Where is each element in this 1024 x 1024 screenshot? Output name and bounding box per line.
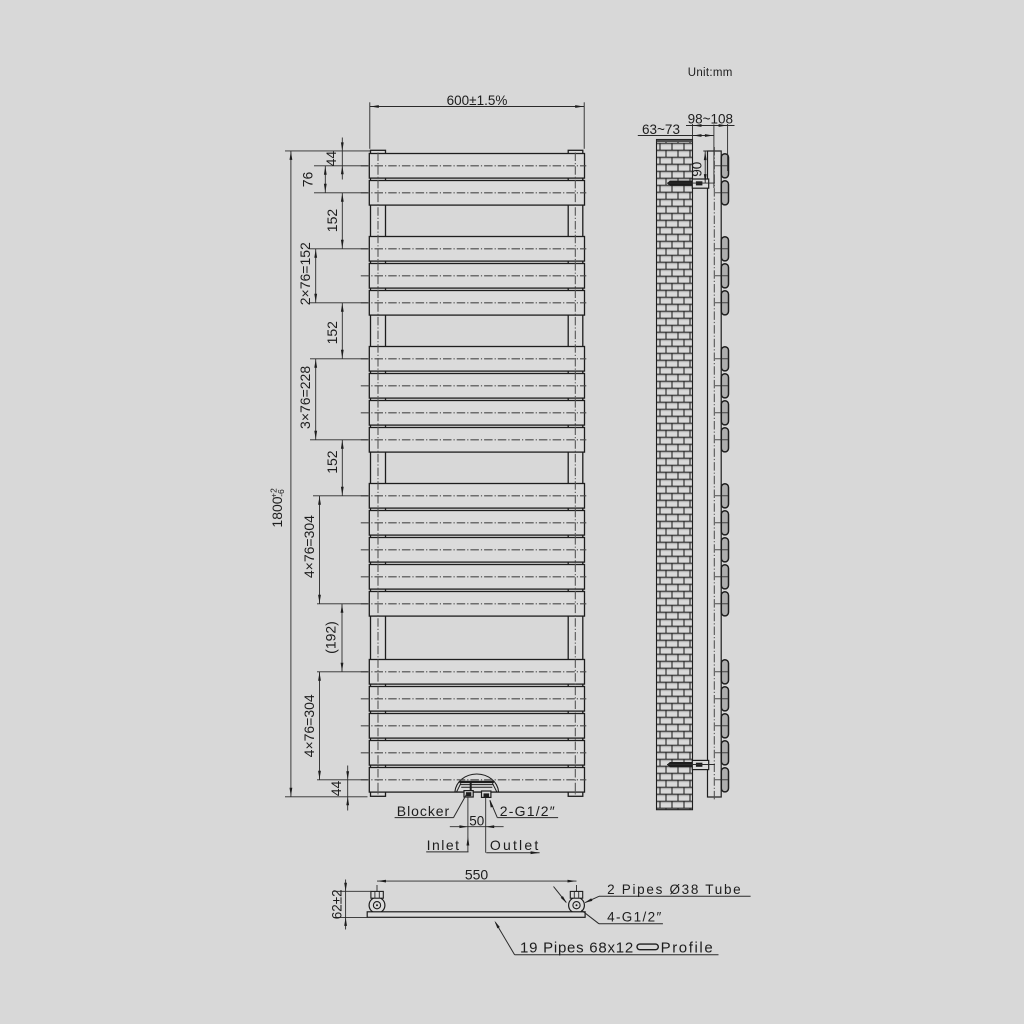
svg-text:3×76=228: 3×76=228 xyxy=(297,366,313,429)
svg-text:Unit:mm: Unit:mm xyxy=(688,67,733,79)
svg-text:(192): (192) xyxy=(322,621,338,654)
svg-text:19 Pipes 68x12: 19 Pipes 68x12 xyxy=(520,940,634,957)
svg-text:152: 152 xyxy=(324,321,340,345)
svg-text:2-G1/2″: 2-G1/2″ xyxy=(500,803,556,819)
svg-text:4×76=304: 4×76=304 xyxy=(301,694,317,757)
svg-text:Profile: Profile xyxy=(661,940,715,957)
svg-text:152: 152 xyxy=(324,450,340,474)
svg-text:63~73: 63~73 xyxy=(642,122,680,137)
svg-text:4×76=304: 4×76=304 xyxy=(301,515,317,578)
svg-text:4-G1/2″: 4-G1/2″ xyxy=(607,910,663,925)
svg-text:600±1.5%: 600±1.5% xyxy=(447,93,508,108)
svg-text:2 Pipes Ø38 Tube: 2 Pipes Ø38 Tube xyxy=(607,882,742,897)
svg-text:1800: 1800 xyxy=(269,496,285,527)
svg-text:90: 90 xyxy=(690,162,705,177)
svg-text:Blocker: Blocker xyxy=(397,803,450,819)
svg-text:44: 44 xyxy=(328,781,344,797)
svg-text:Outlet: Outlet xyxy=(490,837,541,853)
svg-text:50: 50 xyxy=(469,814,484,829)
svg-text:-6: -6 xyxy=(276,489,286,497)
svg-text:152: 152 xyxy=(324,209,340,233)
svg-text:98~108: 98~108 xyxy=(688,112,733,127)
svg-text:44: 44 xyxy=(323,151,339,167)
svg-text:76: 76 xyxy=(300,172,316,188)
svg-text:2×76=152: 2×76=152 xyxy=(297,242,313,305)
svg-text:550: 550 xyxy=(465,867,489,883)
svg-text:Inlet: Inlet xyxy=(427,837,461,853)
svg-text:62±2: 62±2 xyxy=(330,889,345,919)
